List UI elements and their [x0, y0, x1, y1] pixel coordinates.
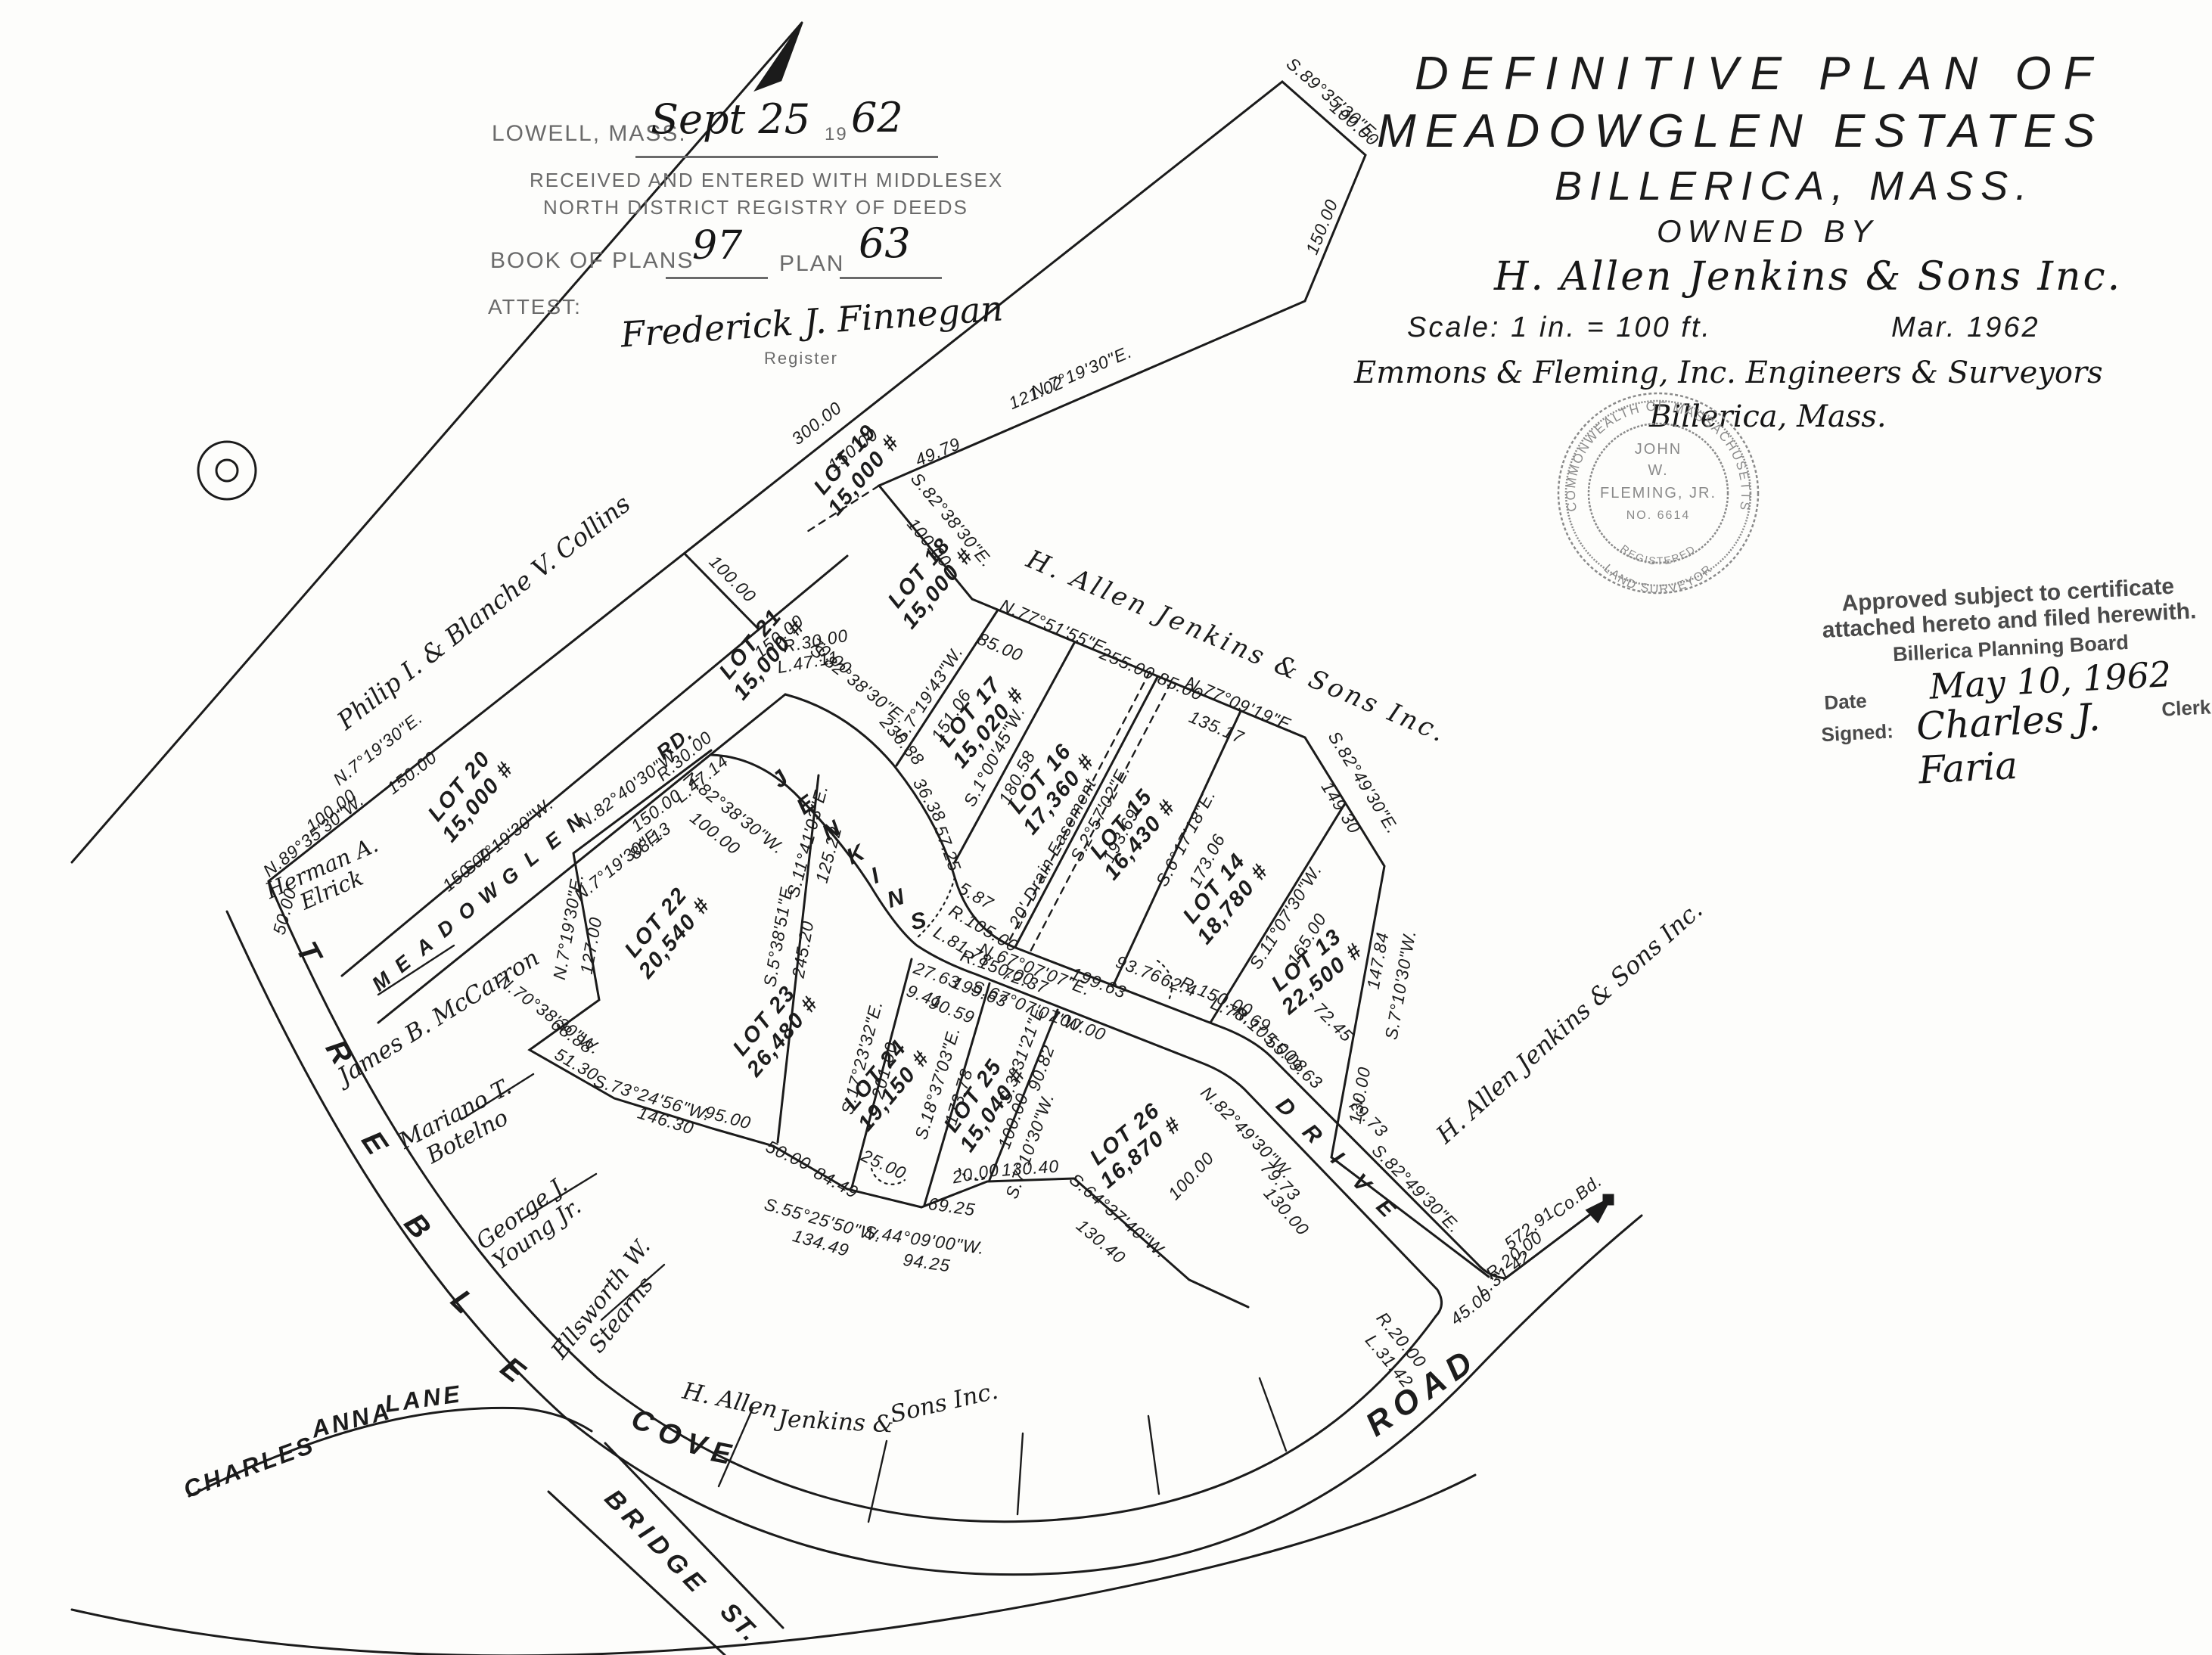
road-name-letter: B — [397, 1207, 438, 1247]
road-name-letter: A — [412, 932, 439, 960]
road-name-letter: E — [792, 790, 821, 820]
road-name-letter: L — [444, 1284, 482, 1322]
road-name-letter: E — [709, 1436, 735, 1472]
road-name-letter: N — [884, 883, 909, 913]
road-name-letter: M — [368, 967, 396, 996]
road-name-letter: V — [1347, 1169, 1376, 1198]
road-name-letter: R — [1297, 1119, 1328, 1150]
survey-plan-page: LOWELL, MASS. Sept 25 19 62 RECEIVED AND… — [0, 0, 2212, 1655]
road-name-letter: I — [1325, 1147, 1349, 1170]
road-name-letter: E — [390, 950, 417, 977]
road-name-letter: O — [654, 1416, 687, 1454]
road-name-letter: E — [494, 1351, 532, 1391]
road-name-letter: ST. — [715, 1597, 766, 1647]
road-name-letter: N — [561, 809, 589, 837]
road-name-letter: G — [497, 862, 525, 890]
road-name-letter: E — [541, 827, 567, 854]
road-name-letter: K — [843, 840, 870, 871]
road-name-letter: V — [683, 1427, 711, 1464]
road-name-letter: S — [908, 907, 930, 936]
road-name-letter: J — [767, 765, 794, 793]
road-name-letter: CHARLES — [180, 1431, 319, 1504]
road-name-letter: E — [1371, 1194, 1400, 1223]
road-name-letter: LANE — [383, 1380, 464, 1418]
road-name-letter: I — [868, 862, 884, 889]
road-name-letter: BRIDGE — [599, 1484, 715, 1602]
road-name-letter: ANNA — [309, 1398, 395, 1444]
road-name-letter: R — [318, 1034, 359, 1071]
road-name-letter: L — [519, 844, 544, 871]
road-name-letter: W — [474, 878, 505, 909]
road-name-letter: D — [433, 914, 460, 942]
road-name-letter: O — [454, 896, 482, 925]
road-name-letter: C — [627, 1403, 659, 1441]
road-name-layer: MEADOWGLENTREBLECOVEJENKINSDRIVEROADCHAR… — [0, 0, 2212, 1655]
road-name-letter: RD. — [652, 722, 697, 765]
road-name-letter: E — [354, 1126, 394, 1163]
road-name-letter: D — [1271, 1093, 1301, 1123]
road-name-letter: ROAD — [1359, 1340, 1485, 1444]
road-name-letter: T — [289, 936, 328, 970]
road-name-letter: N — [818, 815, 847, 846]
